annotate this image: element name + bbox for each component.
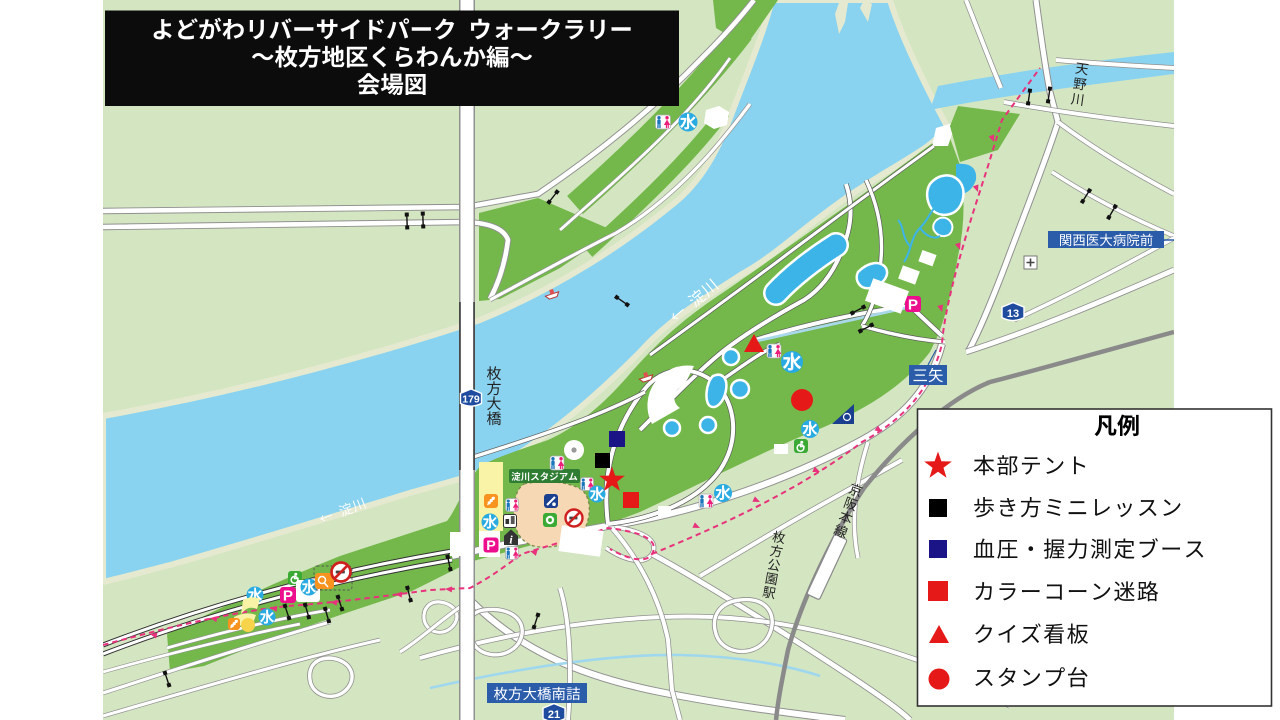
svg-text:13: 13 bbox=[1007, 308, 1019, 320]
svg-text:179: 179 bbox=[462, 394, 480, 406]
svg-text:P: P bbox=[283, 587, 293, 604]
svg-text:21: 21 bbox=[548, 709, 560, 720]
svg-text:P: P bbox=[486, 538, 496, 554]
svg-text:P: P bbox=[908, 296, 918, 313]
